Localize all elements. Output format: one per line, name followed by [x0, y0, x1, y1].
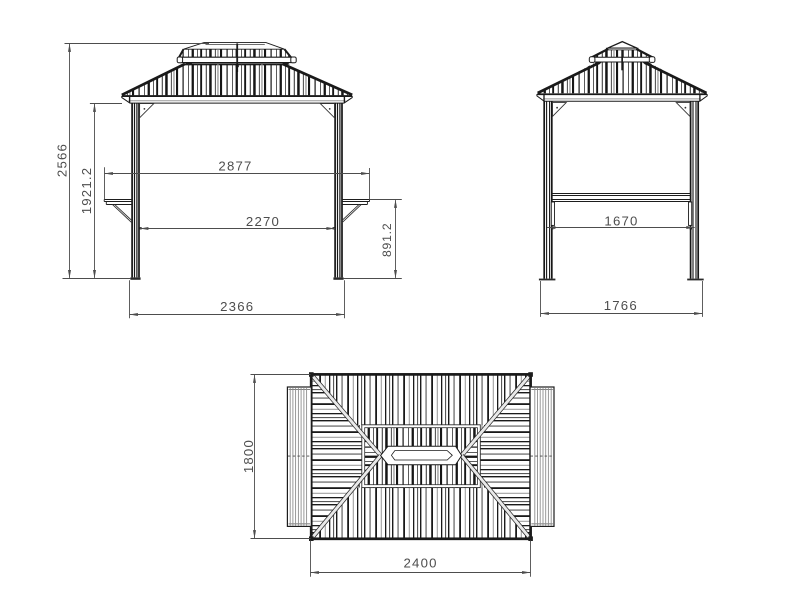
svg-text:891.2: 891.2	[380, 223, 394, 257]
svg-text:2366: 2366	[220, 299, 254, 314]
svg-text:1766: 1766	[604, 298, 638, 313]
svg-text:2270: 2270	[246, 214, 280, 229]
svg-text:2400: 2400	[404, 556, 438, 571]
svg-text:2877: 2877	[218, 158, 252, 173]
svg-text:1921.2: 1921.2	[79, 167, 94, 215]
svg-text:1800: 1800	[241, 439, 256, 473]
svg-text:1670: 1670	[604, 213, 638, 228]
svg-text:2566: 2566	[55, 143, 70, 177]
